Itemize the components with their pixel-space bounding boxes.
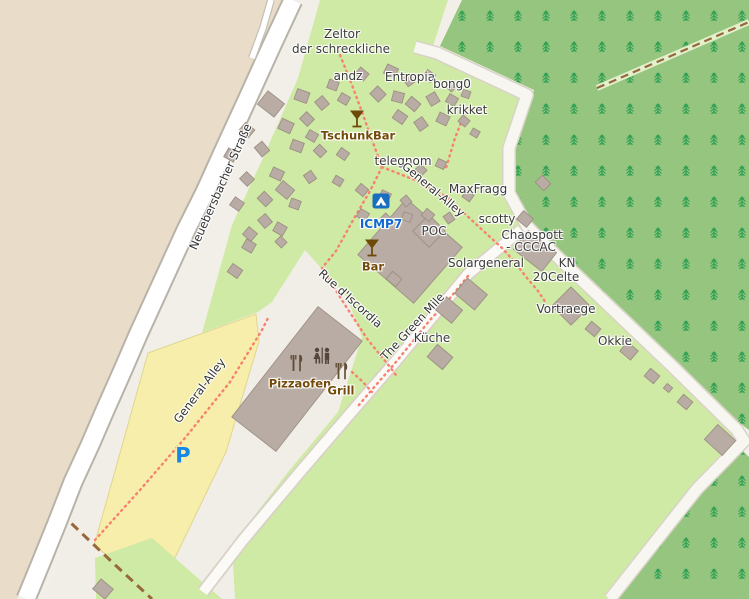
label-bong0: bong0 xyxy=(433,78,471,90)
label-poc: POC xyxy=(421,225,446,237)
label-chaospott-line2: - CCCAC xyxy=(506,241,556,253)
label-parking-p: P xyxy=(175,446,190,467)
label-vortraege: Vortraege xyxy=(537,303,596,315)
label-icmp7: ICMP7 xyxy=(360,218,402,230)
label-scotty: scotty xyxy=(479,213,516,225)
map-canvas[interactable]: Zeltorder schrecklicheandzEntropiabong0k… xyxy=(0,0,749,599)
label-grill: Grill xyxy=(328,385,355,397)
label-zeltor-line2: der schreckliche xyxy=(292,43,390,55)
building xyxy=(391,91,404,104)
label-tschunkbar: TschunkBar xyxy=(321,130,395,142)
label-kn: KN xyxy=(559,257,576,269)
label-kueche: Küche xyxy=(414,332,450,344)
label-okkie: Okkie xyxy=(598,335,632,347)
label-bar: Bar xyxy=(362,261,384,273)
label-solargeneral: Solargeneral xyxy=(448,257,524,269)
label-zeltor-line1: Zeltor xyxy=(324,28,360,40)
label-entropia: Entropia xyxy=(385,71,435,83)
campsite-icon xyxy=(373,194,390,209)
label-krikket: krikket xyxy=(447,104,488,116)
label-pizzaofen: Pizzaofen xyxy=(269,378,331,390)
map-svg[interactable] xyxy=(0,0,749,599)
label-andz: andz xyxy=(334,70,363,82)
label-maxfragg: MaxFragg xyxy=(449,183,507,195)
label-20celte: 20Celte xyxy=(533,271,579,283)
